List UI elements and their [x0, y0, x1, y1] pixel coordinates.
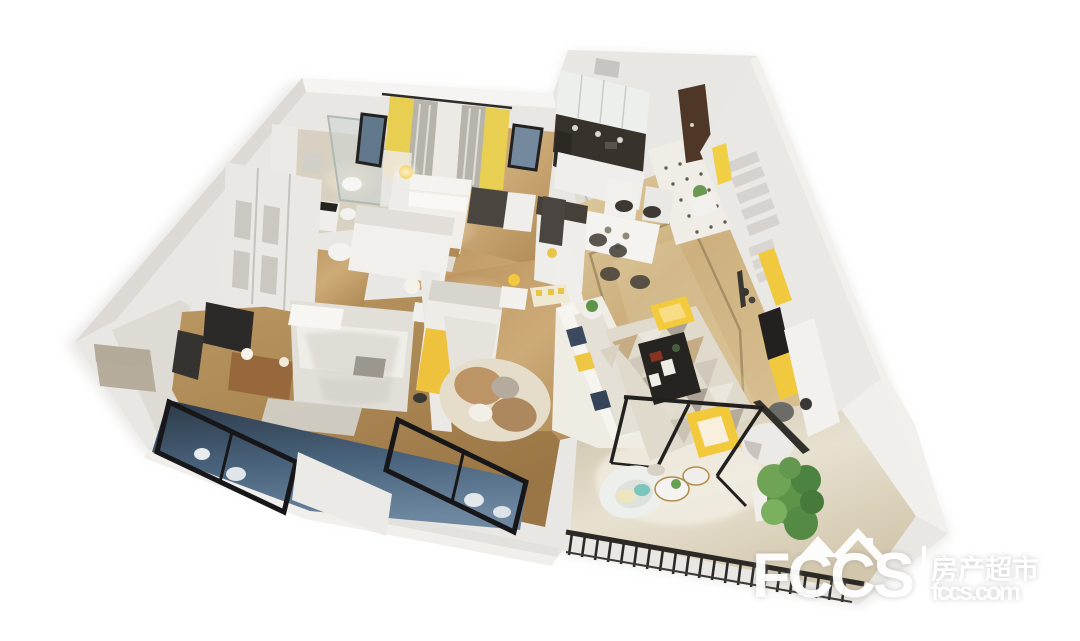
svg-text:fccs.com: fccs.com: [931, 578, 1021, 606]
svg-text:FCCS: FCCS: [752, 541, 915, 611]
